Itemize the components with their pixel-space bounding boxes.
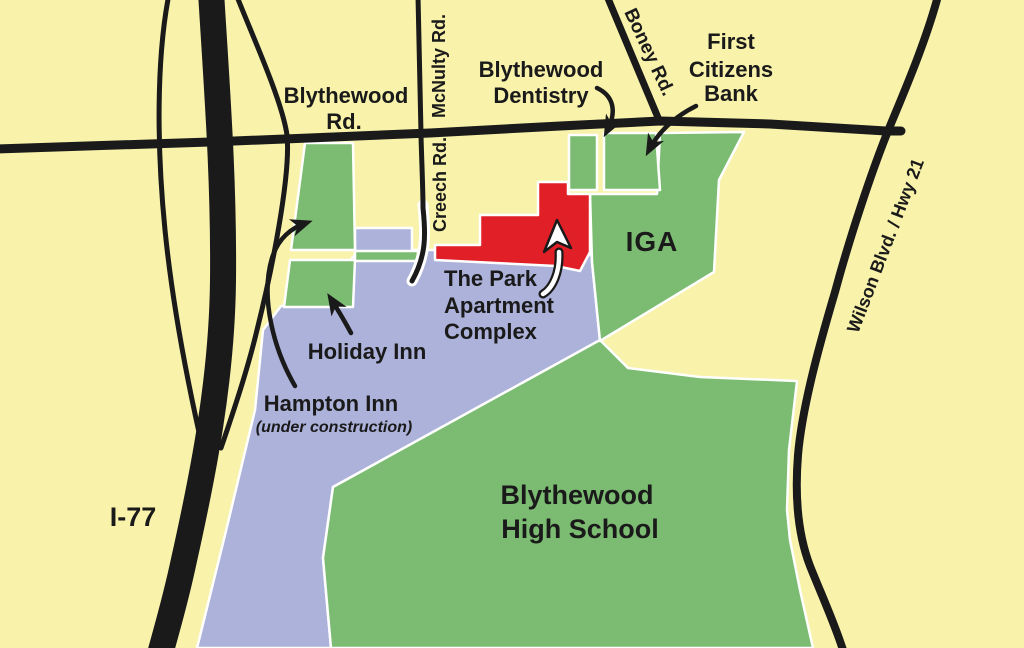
holiday-inn-label: Holiday Inn [308,339,427,364]
i77-label: I-77 [110,502,157,532]
high-school-label-line2: High School [501,514,659,544]
dentistry-parcel [569,135,597,190]
park-label-line2: Apartment [444,293,555,318]
blythewood-area-map: Blythewood Rd. McNulty Rd. Creech Rd. Bo… [0,0,1024,648]
park-label-line1: The Park [444,266,538,291]
blythewood-rd-label-line1: Blythewood [284,83,409,108]
blythewood-rd-label-line2: Rd. [326,109,361,134]
creech-rd-label: Creech Rd. [430,137,450,232]
first-citizens-label-line1: First [707,29,755,54]
map-canvas: Blythewood Rd. McNulty Rd. Creech Rd. Bo… [0,0,1024,648]
holiday-inn-parcel [284,260,355,307]
first-citizens-label-line2: Citizens [689,57,773,82]
mcnulty-rd-label: McNulty Rd. [429,14,449,118]
first-citizens-label-line3: Bank [704,81,759,106]
hampton-inn-label-line2: (under construction) [256,419,412,436]
dentistry-label-line2: Dentistry [493,83,589,108]
iga-label: IGA [626,226,679,257]
mcnulty-rd-road [418,0,421,133]
hampton-inn-label-line1: Hampton Inn [264,391,398,416]
parcel-access-strip [355,251,418,261]
high-school-label-line1: Blythewood [501,480,654,510]
park-label-line3: Complex [444,319,538,344]
dentistry-label-line1: Blythewood [479,57,604,82]
